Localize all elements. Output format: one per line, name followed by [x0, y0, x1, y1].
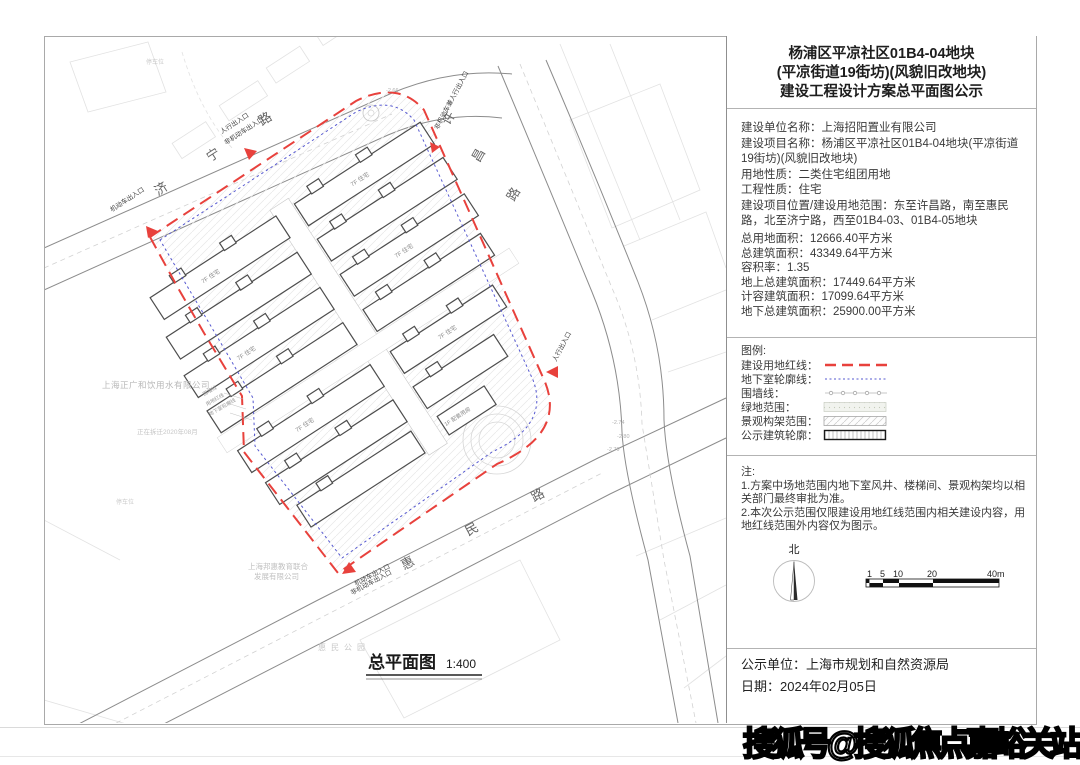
info-line: 建设项目位置/建设用地范围：东至许昌路，南至惠民路，北至济宁路，西至01B4-0…: [741, 199, 1028, 230]
green-area-swatch: [823, 401, 889, 413]
scale-tick: 5: [880, 569, 885, 579]
stat-line: 容积率：1.35: [741, 261, 1028, 276]
notes-heading: 注:: [741, 466, 1026, 480]
title-line: 建设工程设计方案总平面图公示: [727, 83, 1036, 102]
legend-heading: 图例:: [741, 344, 1028, 358]
north-label: 北: [771, 541, 817, 557]
legend: 图例: 建设用地红线： 地下室轮廓线： 围墙线： 绿地范围： 景观构架范围： 公…: [741, 344, 1028, 442]
landscape-frame-swatch: [823, 415, 889, 427]
red-line-swatch: [823, 359, 889, 371]
info-line: 工程性质：住宅: [741, 183, 1028, 199]
legend-label: 公示建筑轮廓：: [741, 427, 823, 443]
stat-line: 计容建筑面积：17099.64平方米: [741, 290, 1028, 305]
building-outline-swatch: [823, 429, 889, 441]
title-line: (平凉街道19街坊)(风貌旧改地块): [727, 64, 1036, 83]
north-arrow: 北: [771, 541, 817, 609]
info-line: 建设单位名称：上海招阳置业有限公司: [741, 121, 1028, 137]
stat-line: 地上总建筑面积：17449.64平方米: [741, 276, 1028, 291]
notes: 注: 1.方案中场地范围内地下室风井、楼梯间、景观构架均以相关部门最终审批为准。…: [741, 466, 1026, 534]
info-line: 用地性质：二类住宅组团用地: [741, 168, 1028, 184]
scale-tick: 10: [893, 569, 903, 579]
area-stats: 总用地面积：12666.40平方米 总建筑面积：43349.64平方米 容积率：…: [741, 232, 1028, 319]
stat-line: 总建筑面积：43349.64平方米: [741, 247, 1028, 262]
stat-line: 总用地面积：12666.40平方米: [741, 232, 1028, 247]
sohu-watermark: 搜狐号@搜狐焦点嘉峪关站: [743, 717, 1078, 765]
title-line: 杨浦区平凉社区01B4-04地块: [727, 45, 1036, 64]
info-panel: 杨浦区平凉社区01B4-04地块 (平凉街道19街坊)(风貌旧改地块) 建设工程…: [726, 36, 1036, 723]
north-arrow-icon: [771, 558, 817, 604]
basement-line-swatch: [823, 373, 889, 385]
divider: [727, 337, 1036, 338]
project-info: 建设单位名称：上海招阳置业有限公司 建设项目名称：杨浦区平凉社区01B4-04地…: [741, 121, 1028, 230]
notice-footer: 公示单位：上海市规划和自然资源局 日期：2024年02月05日: [741, 654, 1028, 698]
stat-line: 地下总建筑面积：25900.00平方米: [741, 305, 1028, 320]
publisher-line: 公示单位：上海市规划和自然资源局: [741, 654, 1028, 676]
notice-title: 杨浦区平凉社区01B4-04地块 (平凉街道19街坊)(风貌旧改地块) 建设工程…: [727, 36, 1036, 109]
date-line: 日期：2024年02月05日: [741, 676, 1028, 698]
scale-bar: 1 5 10 20 40m: [863, 568, 1007, 590]
divider: [727, 648, 1036, 649]
note-line: 2.本次公示范围仅限建设用地红线范围内相关建设内容，用地红线范围外内容仅为图示。: [741, 507, 1026, 534]
divider: [727, 455, 1036, 456]
note-line: 1.方案中场地范围内地下室风井、楼梯间、景观构架均以相关部门最终审批为准。: [741, 480, 1026, 507]
info-line: 建设项目名称：杨浦区平凉社区01B4-04地块(平凉街道19街坊)(风貌旧改地块…: [741, 137, 1028, 168]
wall-line-swatch: [823, 387, 889, 399]
scale-tick: 40m: [987, 569, 1005, 579]
scale-tick: 1: [867, 569, 872, 579]
scale-tick: 20: [927, 569, 937, 579]
